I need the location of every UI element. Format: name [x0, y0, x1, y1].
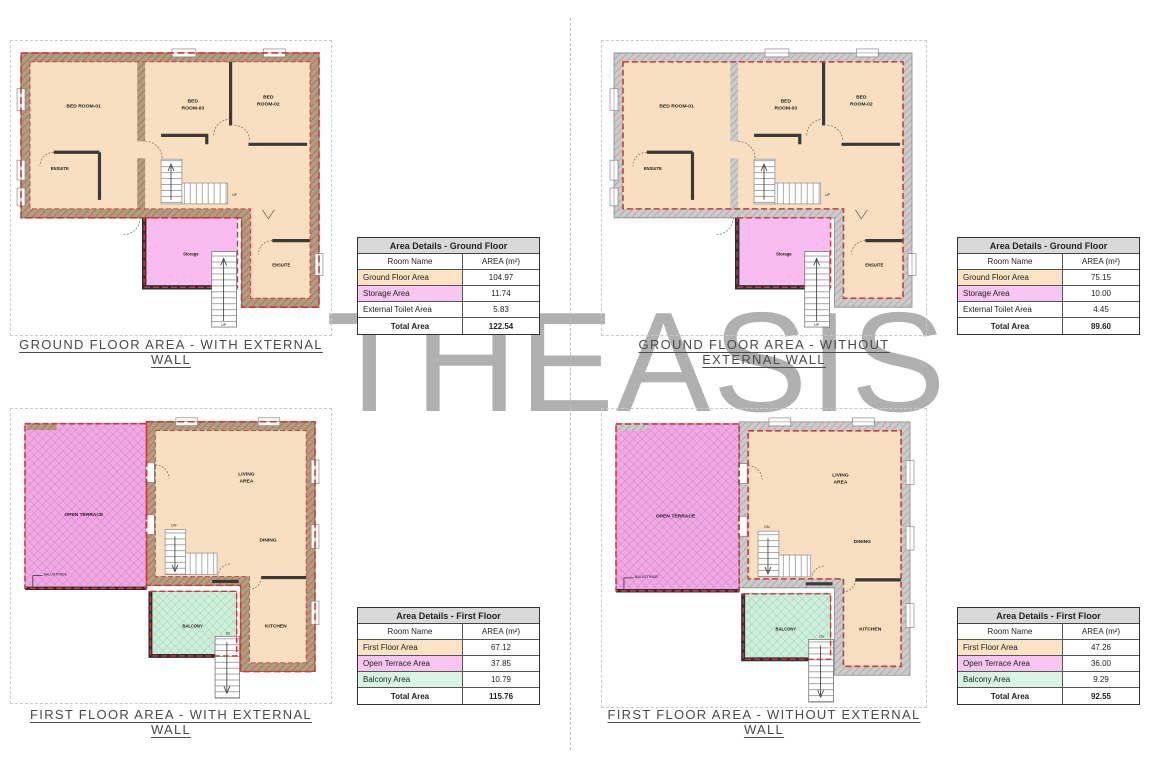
- caption-ground-without-external-wall: GROUND FLOOR AREA - WITHOUT EXTERNAL WAL…: [601, 337, 927, 367]
- table-row: Ground Floor Area 75.15: [958, 270, 1139, 286]
- table-total-row: Total Area 122.54: [358, 318, 539, 334]
- room-label-bedroom-03: BED: [188, 99, 199, 105]
- table-row: Balcony Area 10.79: [358, 672, 539, 688]
- area-table-first-with: Area Details - First Floor Room Name ARE…: [357, 607, 540, 705]
- row-area: 67.12: [463, 640, 539, 655]
- row-area: 75.15: [1063, 270, 1139, 285]
- room-label-bedroom-02b: ROOM-02: [850, 102, 873, 108]
- total-label: Total Area: [958, 318, 1063, 334]
- row-name: Storage Area: [958, 286, 1063, 301]
- stair-label-dn: DN: [171, 524, 177, 528]
- row-name: Storage Area: [358, 286, 463, 301]
- panel-ground-with-external-wall: BED ROOM-01 BED ROOM-03 BED ROOM-02 ENSU…: [10, 40, 332, 336]
- panel-first-with-external-wall: OPEN TERRACE LIVING AREA DINING KITCHEN …: [10, 408, 332, 704]
- room-label-kitchen: KITCHEN: [859, 627, 881, 633]
- room-label-ensuite: ENSUITE: [51, 166, 69, 171]
- annotation-balustrade: BALUSTRADE: [44, 573, 68, 577]
- table-row: Open Terrace Area 36.00: [958, 656, 1139, 672]
- table-total-row: Total Area 89.60: [958, 318, 1139, 334]
- table-title: Area Details - Ground Floor: [358, 238, 539, 254]
- room-label-kitchen: KITCHEN: [265, 624, 287, 630]
- room-label-living-area: LIVING: [832, 473, 849, 479]
- row-area: 5.83: [463, 302, 539, 317]
- row-name: Open Terrace Area: [958, 656, 1063, 671]
- row-area: 10.00: [1063, 286, 1139, 301]
- column-header-area: AREA (m²): [463, 624, 539, 639]
- table-row: External Toilet Area 5.83: [358, 302, 539, 318]
- row-area: 9.29: [1063, 672, 1139, 687]
- table-row: First Floor Area 47.26: [958, 640, 1139, 656]
- row-name: Open Terrace Area: [358, 656, 463, 671]
- room-label-bedroom-03: BED: [781, 99, 792, 105]
- stair-label-up: UP: [825, 193, 831, 197]
- table-title: Area Details - Ground Floor: [958, 238, 1139, 254]
- column-header-room-name: Room Name: [358, 254, 463, 269]
- panel-ground-without-external-wall: BED ROOM-01 BED ROOM-03 BED ROOM-02 ENSU…: [601, 40, 927, 336]
- row-area: 11.74: [463, 286, 539, 301]
- row-area: 4.45: [1063, 302, 1139, 317]
- caption-first-with-external-wall: FIRST FLOOR AREA - WITH EXTERNAL WALL: [10, 707, 332, 737]
- table-row: Storage Area 10.00: [958, 286, 1139, 302]
- floor-plan-ground-without-external-wall: BED ROOM-01 BED ROOM-03 BED ROOM-02 ENSU…: [602, 41, 926, 335]
- table-header-row: Room Name AREA (m²): [358, 254, 539, 270]
- column-header-room-name: Room Name: [958, 624, 1063, 639]
- row-name: Ground Floor Area: [358, 270, 463, 285]
- room-label-bedroom-01: BED ROOM-01: [659, 104, 694, 110]
- row-name: External Toilet Area: [358, 302, 463, 317]
- stair-label-dn: DN: [764, 525, 770, 529]
- total-value: 122.54: [463, 318, 539, 334]
- room-label-open-terrace: OPEN TERRACE: [64, 512, 104, 518]
- row-name: Balcony Area: [358, 672, 463, 687]
- total-label: Total Area: [958, 688, 1063, 704]
- stair-label-up-external: UP: [221, 323, 227, 327]
- table-total-row: Total Area 115.76: [358, 688, 539, 704]
- stair-label-up: UP: [232, 193, 238, 197]
- area-table-ground-without: Area Details - Ground Floor Room Name AR…: [957, 237, 1140, 335]
- room-label-bedroom-02: BED: [856, 95, 867, 101]
- room-label-living-area-b: AREA: [240, 479, 254, 485]
- column-header-area: AREA (m²): [1063, 254, 1139, 269]
- stair-label-dn-external: Dn: [819, 634, 824, 638]
- caption-first-without-external-wall: FIRST FLOOR AREA - WITHOUT EXTERNAL WALL: [601, 707, 927, 737]
- room-label-dining: DINING: [259, 537, 276, 543]
- total-value: 115.76: [463, 688, 539, 704]
- stair-label-dn-external: Dn: [226, 631, 231, 635]
- total-value: 89.60: [1063, 318, 1139, 334]
- table-row: Balcony Area 9.29: [958, 672, 1139, 688]
- row-area: 37.85: [463, 656, 539, 671]
- row-name: First Floor Area: [358, 640, 463, 655]
- column-header-area: AREA (m²): [463, 254, 539, 269]
- column-header-room-name: Room Name: [358, 624, 463, 639]
- total-label: Total Area: [358, 318, 463, 334]
- room-label-bedroom-02b: ROOM-02: [257, 102, 280, 108]
- total-value: 92.55: [1063, 688, 1139, 704]
- room-label-balcony: BALCONY: [182, 624, 203, 629]
- floor-plan-ground-with-external-wall: BED ROOM-01 BED ROOM-03 BED ROOM-02 ENSU…: [11, 41, 331, 335]
- table-row: Open Terrace Area 37.85: [358, 656, 539, 672]
- room-label-external-toilet-ensuite: ENSUITE: [272, 262, 290, 267]
- floor-plan-first-without-external-wall: OPEN TERRACE LIVING AREA DINING KITCHEN …: [602, 409, 926, 707]
- room-label-bedroom-02: BED: [263, 95, 274, 101]
- caption-ground-with-external-wall: GROUND FLOOR AREA - WITH EXTERNAL WALL: [10, 337, 332, 367]
- table-header-row: Room Name AREA (m²): [958, 254, 1139, 270]
- table-title: Area Details - First Floor: [358, 608, 539, 624]
- row-area: 10.79: [463, 672, 539, 687]
- row-name: External Toilet Area: [958, 302, 1063, 317]
- floor-plan-first-with-external-wall: OPEN TERRACE LIVING AREA DINING KITCHEN …: [11, 409, 331, 703]
- table-header-row: Room Name AREA (m²): [958, 624, 1139, 640]
- room-label-balcony: BALCONY: [776, 627, 797, 632]
- row-name: Balcony Area: [958, 672, 1063, 687]
- table-title: Area Details - First Floor: [958, 608, 1139, 624]
- table-row: Ground Floor Area 104.97: [358, 270, 539, 286]
- room-label-dining: DINING: [854, 539, 871, 545]
- sheet-divider-line: [570, 18, 571, 750]
- table-header-row: Room Name AREA (m²): [358, 624, 539, 640]
- row-name: Ground Floor Area: [958, 270, 1063, 285]
- row-area: 36.00: [1063, 656, 1139, 671]
- stair-label-up-external: UP: [814, 323, 820, 327]
- room-label-open-terrace: OPEN TERRACE: [656, 513, 696, 519]
- total-label: Total Area: [358, 688, 463, 704]
- room-label-storage: Storage: [776, 252, 792, 257]
- room-label-external-toilet-ensuite: ENSUITE: [865, 262, 883, 267]
- row-name: First Floor Area: [958, 640, 1063, 655]
- panel-first-without-external-wall: OPEN TERRACE LIVING AREA DINING KITCHEN …: [601, 408, 927, 708]
- room-label-bedroom-03b: ROOM-03: [182, 106, 205, 112]
- room-label-living-area: LIVING: [238, 472, 254, 478]
- area-table-first-without: Area Details - First Floor Room Name ARE…: [957, 607, 1140, 705]
- room-label-ensuite: ENSUITE: [644, 166, 662, 171]
- room-label-storage: Storage: [183, 252, 199, 257]
- column-header-room-name: Room Name: [958, 254, 1063, 269]
- table-row: External Toilet Area 4.45: [958, 302, 1139, 318]
- room-label-living-area-b: AREA: [833, 480, 847, 486]
- table-row: First Floor Area 67.12: [358, 640, 539, 656]
- room-label-bedroom-03b: ROOM-03: [775, 106, 798, 112]
- table-row: Storage Area 11.74: [358, 286, 539, 302]
- row-area: 104.97: [463, 270, 539, 285]
- room-label-bedroom-01: BED ROOM-01: [66, 104, 101, 110]
- table-total-row: Total Area 92.55: [958, 688, 1139, 704]
- area-table-ground-with: Area Details - Ground Floor Room Name AR…: [357, 237, 540, 335]
- column-header-area: AREA (m²): [1063, 624, 1139, 639]
- row-area: 47.26: [1063, 640, 1139, 655]
- annotation-balustrade: BALUSTRADE: [635, 575, 659, 579]
